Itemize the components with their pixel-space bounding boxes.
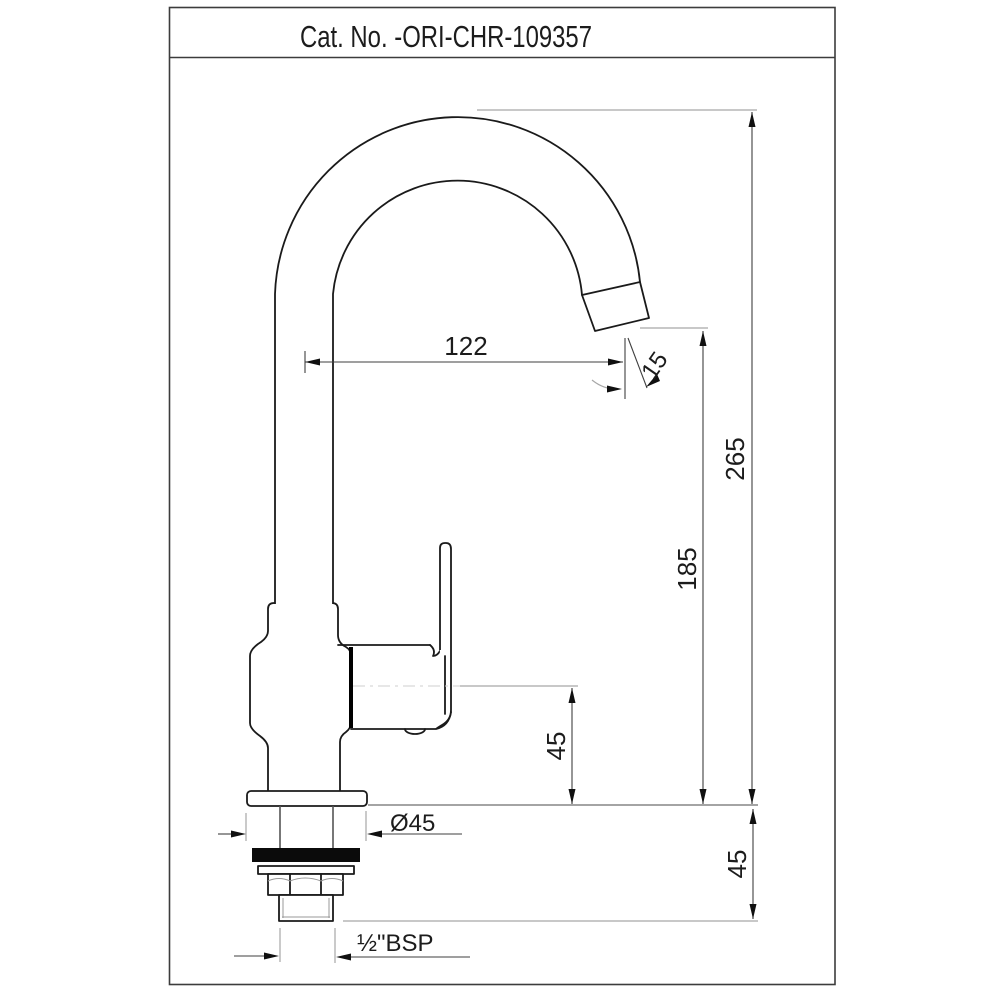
lever-handle xyxy=(436,543,451,729)
dim-spout-angle: 15 xyxy=(607,338,674,399)
dim-shank-length: 45 xyxy=(722,809,757,919)
dim-inlet-thread: ½"BSP xyxy=(234,930,470,961)
faucet-body xyxy=(250,603,351,792)
lever-joint-curl xyxy=(430,645,440,656)
dim-overall-height: 265 xyxy=(720,112,756,804)
dim-cartridge-center-height: 45 xyxy=(541,688,576,804)
faucet-drawing xyxy=(247,117,649,921)
base-flange xyxy=(247,791,367,806)
dim-spout-outlet-height: 185 xyxy=(672,331,707,804)
dim-flange-diameter-label: Ø45 xyxy=(390,810,435,837)
drawing-sheet: Cat. No. -ORI-CHR-109357 xyxy=(0,0,1000,1000)
catalog-number: Cat. No. -ORI-CHR-109357 xyxy=(300,19,592,54)
dim-shank-length-label: 45 xyxy=(722,850,752,879)
inlet-thread xyxy=(279,895,333,921)
dim-spout-reach: 122 xyxy=(305,331,623,373)
dim-spout-angle-label: 15 xyxy=(636,347,673,384)
dim-overall-height-label: 265 xyxy=(720,437,750,480)
metal-washer xyxy=(258,866,354,874)
dim-spout-outlet-height-label: 185 xyxy=(672,547,702,590)
cartridge-bottom-edge xyxy=(351,712,451,729)
dim-flange-diameter: Ø45 xyxy=(218,810,462,838)
lock-nut xyxy=(268,874,343,895)
dim-inlet-thread-label: ½"BSP xyxy=(357,930,434,957)
dim-cartridge-center-height-label: 45 xyxy=(541,732,571,761)
drawing-canvas: Cat. No. -ORI-CHR-109357 xyxy=(0,0,1000,1000)
dim-spout-reach-label: 122 xyxy=(444,331,487,361)
rubber-washer xyxy=(252,848,360,862)
